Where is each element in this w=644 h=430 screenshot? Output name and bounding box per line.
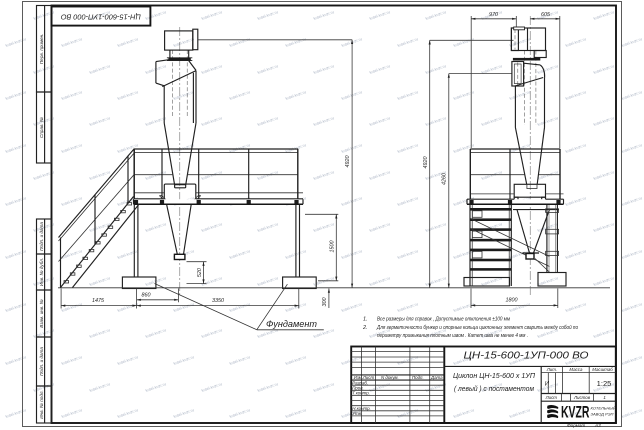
svg-text:Инв. № подл.: Инв. № подл. <box>39 390 44 419</box>
svg-text:периметру примыкания плотным ш: периметру примыкания плотным швом . Кате… <box>377 333 528 339</box>
svg-text:Лист: Лист <box>545 395 558 400</box>
svg-text:Изм.: Изм. <box>354 375 363 380</box>
svg-text:Циклон ЦН-15-600 х 1УП: Циклон ЦН-15-600 х 1УП <box>453 373 536 380</box>
svg-text:Дата: Дата <box>430 375 443 380</box>
svg-text:Лит.: Лит. <box>546 367 557 372</box>
svg-text:Взам. инв. №: Взам. инв. № <box>39 299 44 327</box>
svg-text:Подп. и дата: Подп. и дата <box>39 347 44 376</box>
svg-text:А3: А3 <box>594 423 601 428</box>
svg-text:Формат: Формат <box>567 423 585 428</box>
svg-text:ЦН-15-600-1УП-000 ВО: ЦН-15-600-1УП-000 ВО <box>61 12 141 21</box>
svg-text:4920: 4920 <box>345 156 351 168</box>
svg-text:Т.контр.: Т.контр. <box>352 391 370 396</box>
svg-text:Для герметичности бункер и опо: Для герметичности бункер и опорные кольц… <box>376 324 578 331</box>
svg-text:605: 605 <box>541 12 551 18</box>
svg-text:1.: 1. <box>363 317 368 323</box>
svg-text:КОТЕЛЬНЫЙ: КОТЕЛЬНЫЙ <box>591 406 616 411</box>
svg-text:300: 300 <box>322 298 328 307</box>
svg-text:Справ. №: Справ. № <box>39 117 44 138</box>
svg-text:Листов: Листов <box>573 395 591 400</box>
svg-text:Подп.: Подп. <box>412 375 424 380</box>
svg-text:Фундамент: Фундамент <box>266 319 318 329</box>
svg-text:Масса: Масса <box>569 367 583 372</box>
svg-text:860: 860 <box>142 293 151 299</box>
svg-text:N докум.: N докум. <box>381 375 399 380</box>
svg-text:Утв.: Утв. <box>352 411 362 416</box>
svg-text:Подп. и дата: Подп. и дата <box>39 222 44 251</box>
svg-text:2.: 2. <box>362 325 368 331</box>
svg-text:1475: 1475 <box>92 298 105 304</box>
svg-text:4260: 4260 <box>441 173 447 185</box>
svg-text:970: 970 <box>489 12 498 18</box>
svg-text:4920: 4920 <box>423 157 429 169</box>
svg-text:И: И <box>545 382 550 388</box>
svg-text:3350: 3350 <box>212 298 224 304</box>
svg-text:( левый ) с постаментом: ( левый ) с постаментом <box>454 385 534 393</box>
svg-text:Инв. № дубл.: Инв. № дубл. <box>39 258 44 286</box>
svg-text:Лист: Лист <box>362 375 375 380</box>
svg-text:ЗАВОД РЭП: ЗАВОД РЭП <box>591 411 614 416</box>
svg-text:Перв. примен.: Перв. примен. <box>39 34 44 65</box>
svg-text:KVZR: KVZR <box>561 404 590 422</box>
svg-text:1500: 1500 <box>330 241 336 253</box>
svg-text:1800: 1800 <box>506 298 518 304</box>
svg-text:ЦН-15-600-1УП-000 ВО: ЦН-15-600-1УП-000 ВО <box>464 351 589 362</box>
svg-text:520: 520 <box>197 268 203 277</box>
svg-text:1:25: 1:25 <box>597 379 612 388</box>
svg-text:Масштаб: Масштаб <box>592 367 613 372</box>
svg-text:Все размеры для справок , Допу: Все размеры для справок , Допустимые отк… <box>377 317 510 323</box>
